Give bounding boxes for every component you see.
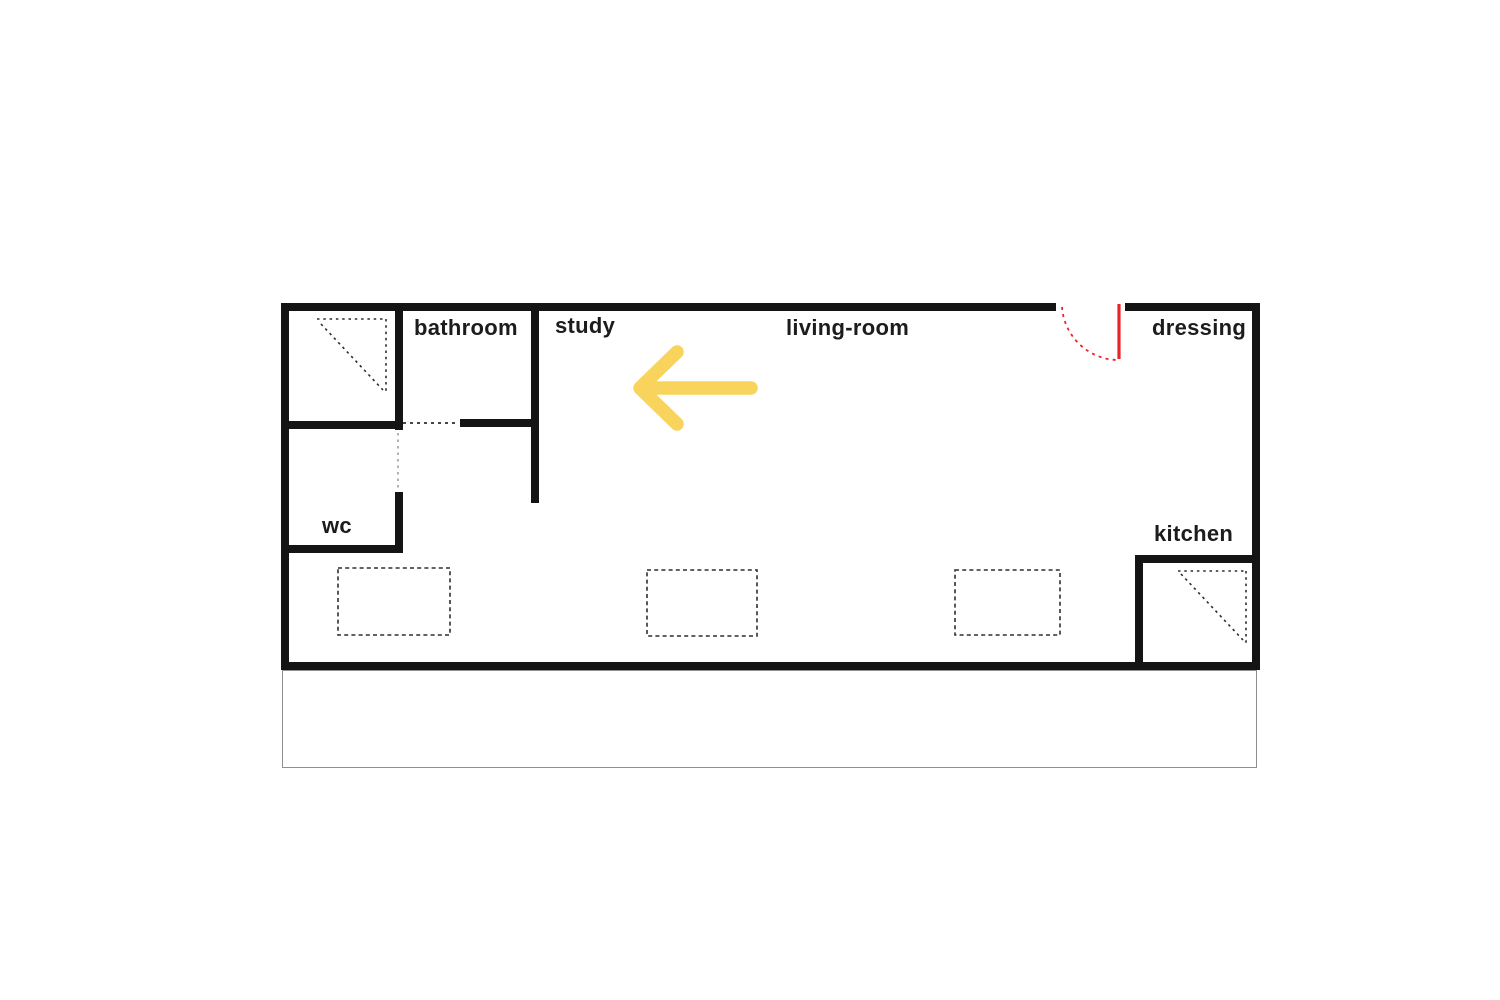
- door-swing-arc: [1062, 307, 1117, 360]
- room-label-dressing: dressing: [1152, 317, 1246, 339]
- furniture-outline: [338, 568, 450, 635]
- furniture-outlines: [338, 568, 1060, 636]
- floor-plan: bathroom study living-room dressing wc k…: [0, 0, 1500, 1000]
- room-label-study: study: [555, 315, 615, 337]
- left-arrow-icon: [640, 352, 751, 424]
- door-swing-icon: [1062, 304, 1119, 360]
- room-label-living-room: living-room: [786, 317, 909, 339]
- shower-tray-icon: [1178, 571, 1246, 643]
- room-label-wc: wc: [322, 515, 352, 537]
- shower-tray-icon: [317, 319, 386, 394]
- room-label-bathroom: bathroom: [414, 317, 518, 339]
- plan-vector-overlay: [0, 0, 1500, 1000]
- room-label-kitchen: kitchen: [1154, 523, 1233, 545]
- furniture-outline: [955, 570, 1060, 635]
- furniture-outline: [647, 570, 757, 636]
